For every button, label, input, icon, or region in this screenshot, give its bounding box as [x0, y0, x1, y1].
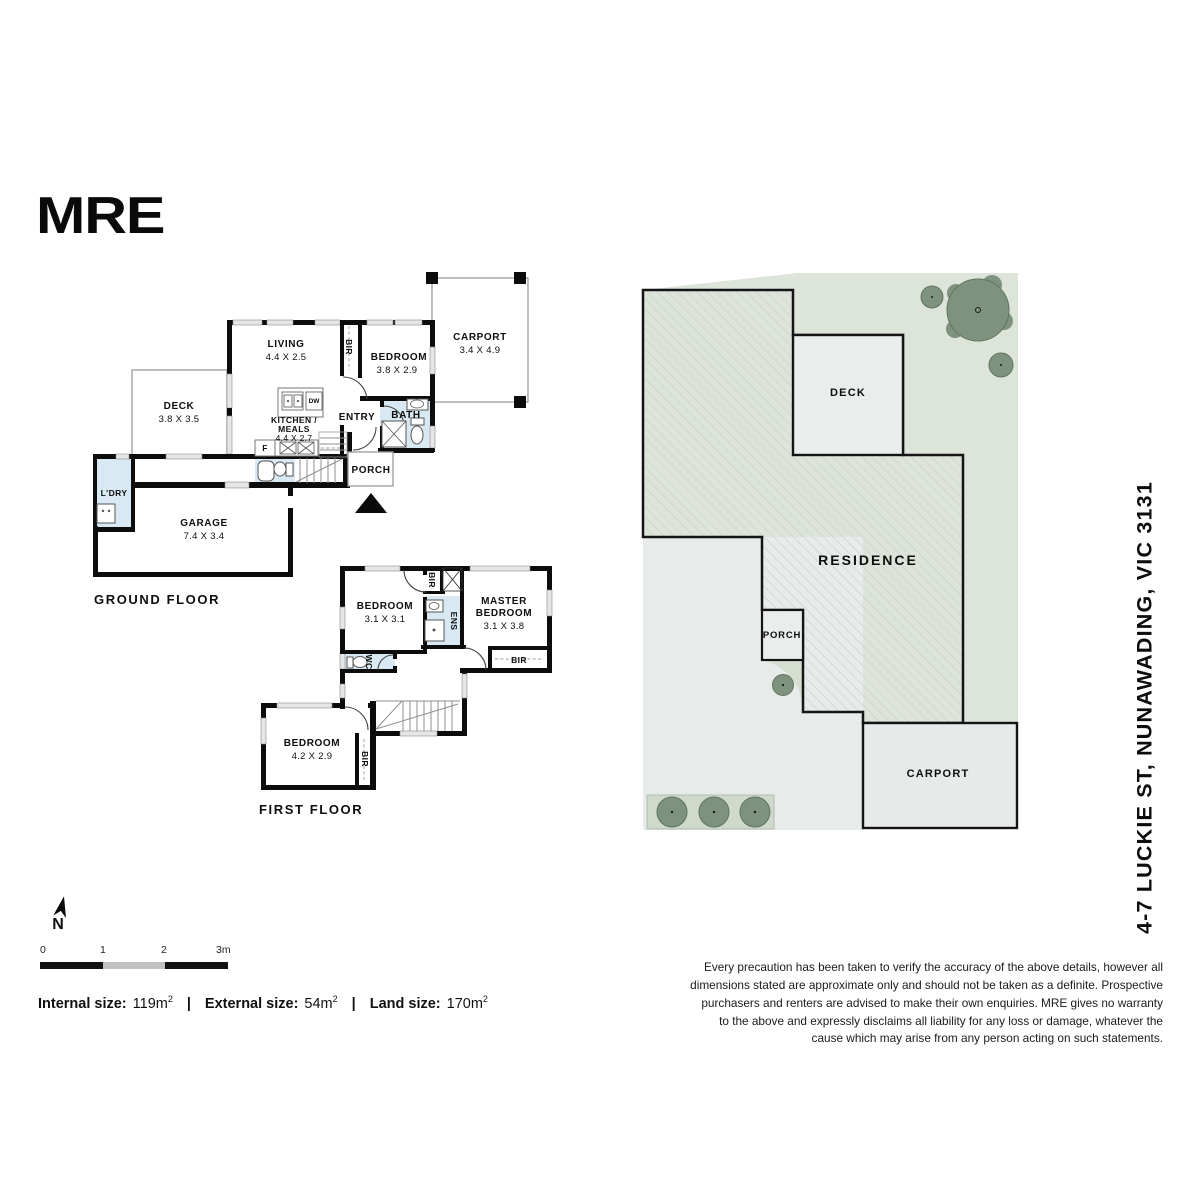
site-garden-bed — [647, 795, 774, 829]
first-floor-title: FIRST FLOOR — [259, 802, 363, 817]
first-floor-plan: BEDROOM 3.1 X 3.1 BIR ENS MASTER BEDROOM… — [255, 560, 555, 822]
ff-ens-fixtures — [425, 600, 444, 641]
area-sizes: Internal size:119m2|External size:54m2|L… — [38, 994, 488, 1012]
ff-bedroom3-label: BEDROOM — [284, 738, 340, 749]
ff-linen-cupboard — [443, 568, 462, 591]
ff-wc-fixtures — [347, 657, 367, 669]
size-separator: | — [338, 996, 370, 1012]
gf-fridge-label: F — [262, 443, 268, 453]
gf-deck-dims: 3.8 X 3.5 — [159, 414, 200, 425]
site-deck-label: DECK — [830, 387, 866, 399]
scale-bar-segments — [40, 962, 228, 969]
gf-porch-label: PORCH — [351, 465, 390, 476]
gf-garage-label: GARAGE — [180, 518, 228, 529]
gf-deck-label: DECK — [164, 401, 195, 412]
gf-bath-label: BATH — [391, 410, 420, 421]
ff-bir1-label: BIR — [427, 572, 437, 588]
internal-size-value: 119m — [127, 996, 168, 1012]
internal-size-label: Internal size: — [38, 996, 127, 1012]
ff-bedroom1-label: BEDROOM — [357, 601, 413, 612]
gf-living-label: LIVING — [268, 339, 305, 350]
sup-2: 2 — [483, 994, 488, 1004]
disclaimer-text: Every precaution has been taken to verif… — [689, 959, 1163, 1049]
ff-bir3-label: BIR — [360, 751, 370, 767]
scale-tick-0: 0 — [40, 944, 46, 956]
mre-logo: MRE — [36, 186, 164, 246]
gf-bir-label: BIR — [344, 339, 354, 355]
ff-master-dims: 3.1 X 3.8 — [484, 621, 525, 632]
gf-carport: CARPORT 3.4 X 4.9 — [426, 272, 528, 408]
gf-garage-dims: 7.4 X 3.4 — [184, 531, 225, 542]
ff-master-label-1: MASTER — [481, 596, 527, 607]
land-size-label: Land size: — [370, 996, 441, 1012]
scale-tick-2: 2 — [161, 944, 167, 956]
north-arrow: N — [40, 882, 100, 942]
external-size-value: 54m — [298, 996, 332, 1012]
north-arrow-needle — [53, 895, 70, 918]
site-residence-label: RESIDENCE — [818, 552, 918, 568]
north-arrow-n: N — [52, 916, 64, 933]
gf-ldry-label: L'DRY — [101, 488, 128, 498]
ff-stairs — [376, 701, 460, 731]
gf-entry-label: ENTRY — [339, 412, 376, 423]
site-plan: DECK RESIDENCE PORCH CARPORT — [640, 265, 1025, 840]
site-porch-label: PORCH — [763, 630, 801, 641]
size-separator: | — [173, 996, 205, 1012]
scale-tick-1: 1 — [100, 944, 106, 956]
gf-kitchen-island: DW — [278, 388, 323, 417]
floorplan-sheet: MRE CARPORT 3.4 X 4.9 DECK 3.8 X 3.5 — [0, 0, 1200, 1200]
ff-bedroom3-dims: 4.2 X 2.9 — [292, 751, 333, 762]
site-carport-label: CARPORT — [907, 768, 970, 780]
gf-carport-dims: 3.4 X 4.9 — [460, 345, 501, 356]
external-size-label: External size: — [205, 996, 299, 1012]
gf-living-dims: 4.4 X 2.5 — [266, 352, 307, 363]
gf-bedroom-label: BEDROOM — [371, 352, 427, 363]
ff-wc-label: WC — [364, 655, 374, 670]
land-size-value: 170m — [441, 996, 483, 1012]
gf-kitchen-dims: 4.4 X 2.7 — [276, 433, 313, 443]
scale-tick-3: 3m — [216, 944, 231, 956]
ff-master-label-2: BEDROOM — [476, 608, 532, 619]
site-tree-large — [947, 279, 1009, 341]
property-address: 4-7 LUCKIE ST, NUNAWADING, VIC 3131 — [1122, 510, 1168, 934]
gf-bedroom-dims: 3.8 X 2.9 — [377, 365, 418, 376]
scale-bar: 0 1 2 3m — [40, 944, 228, 969]
ground-floor-title: GROUND FLOOR — [94, 592, 220, 607]
gf-dishwasher-label: DW — [309, 398, 321, 405]
gf-entry-arrow — [355, 493, 387, 513]
ff-ens-label: ENS — [449, 612, 459, 631]
gf-deck: DECK 3.8 X 3.5 — [132, 370, 227, 458]
gf-laundry-trough — [97, 504, 115, 523]
ff-bir2-label: BIR — [511, 655, 527, 665]
ff-bedroom1-dims: 3.1 X 3.1 — [365, 614, 406, 625]
gf-carport-label: CARPORT — [453, 332, 507, 343]
sup-2: 2 — [333, 994, 338, 1004]
